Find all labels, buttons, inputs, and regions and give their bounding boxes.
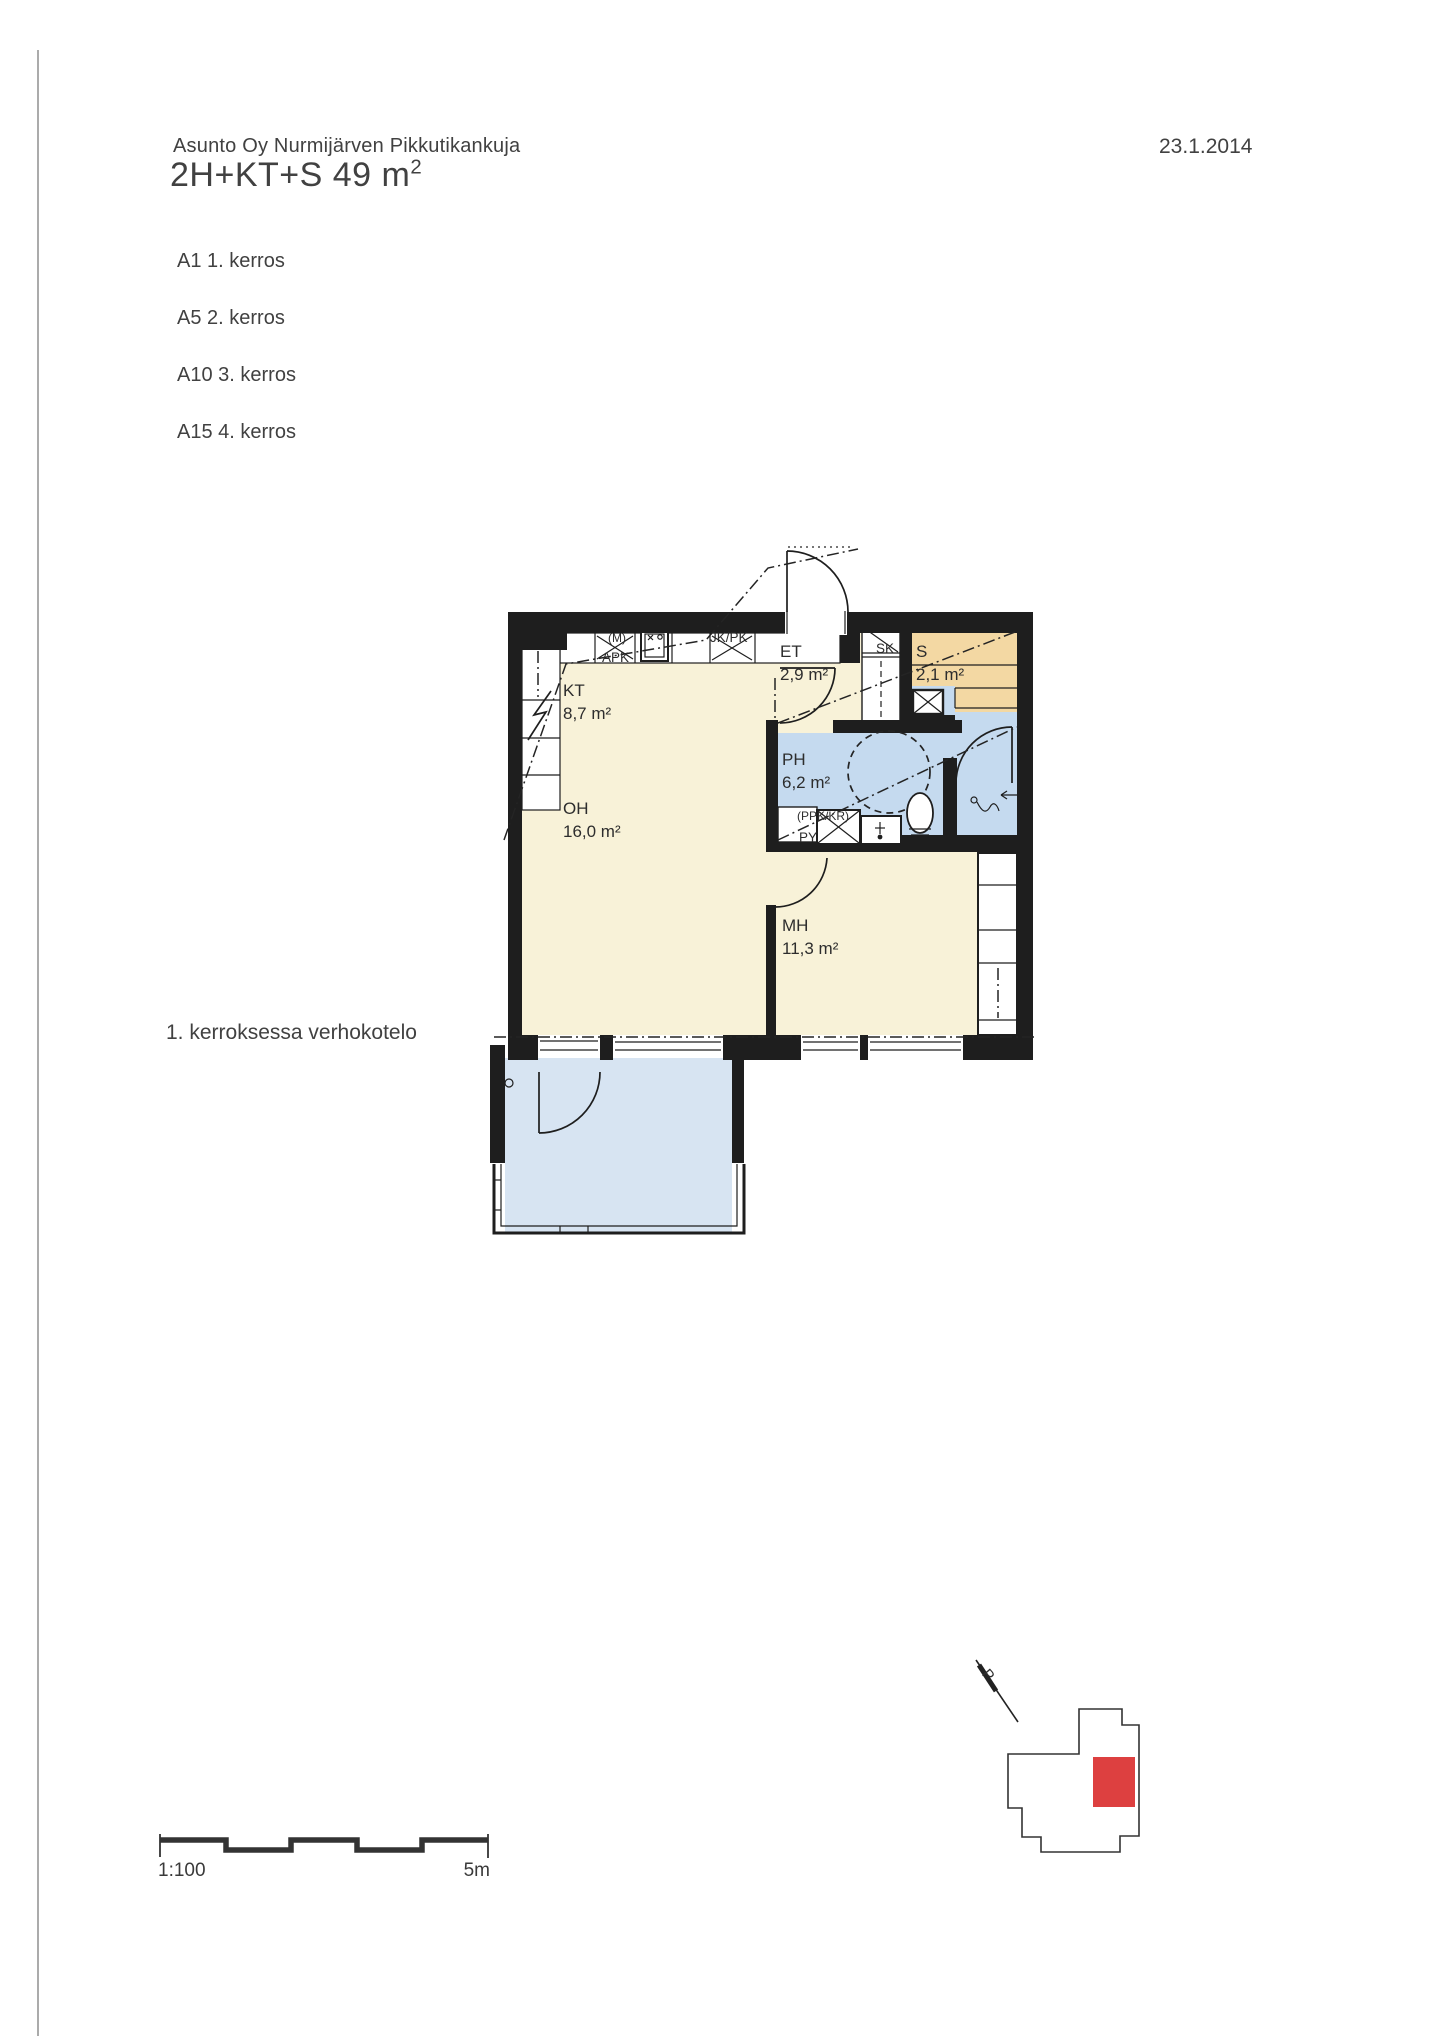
scan-edge-line bbox=[37, 50, 39, 2036]
apartment-type-title: 2H+KT+S 49 m2 bbox=[170, 156, 422, 195]
room-area-ph: 6,2 m² bbox=[782, 773, 831, 792]
room-area-kt: 8,7 m² bbox=[563, 704, 612, 723]
north-arrow-icon: P bbox=[976, 1660, 1018, 1722]
room-label-mh: MH bbox=[782, 916, 808, 935]
floor-plan: KT 8,7 m² OH 16,0 m² ET 2,9 m² SK S 2,1 … bbox=[470, 440, 1070, 1250]
room-label-et: ET bbox=[780, 642, 802, 661]
closet-sk bbox=[862, 625, 900, 722]
label-washer-dryer: (PPK/KR) bbox=[797, 809, 849, 823]
room-area-mh: 11,3 m² bbox=[782, 939, 839, 958]
apartment-highlight bbox=[1093, 1757, 1135, 1807]
label-fridge-freezer: JK/PK bbox=[710, 630, 748, 645]
room-area-et: 2,9 m² bbox=[780, 665, 829, 684]
apartment-type-superscript: 2 bbox=[410, 157, 422, 179]
floor-item-a5: A5 2. kerros bbox=[177, 308, 296, 329]
scale-ratio: 1:100 bbox=[158, 1860, 206, 1881]
floor-item-a1: A1 1. kerros bbox=[177, 251, 296, 272]
label-laundry: PY bbox=[799, 830, 817, 845]
toilet-icon bbox=[907, 793, 933, 835]
floor-item-a10: A10 3. kerros bbox=[177, 365, 296, 386]
room-label-ph: PH bbox=[782, 750, 806, 769]
room-label-s: S bbox=[916, 642, 927, 661]
wardrobe-mh bbox=[978, 853, 1017, 1035]
project-name: Asunto Oy Nurmijärven Pikkutikankuja bbox=[173, 135, 520, 158]
apartment-type-text: 2H+KT+S 49 m bbox=[170, 156, 410, 194]
scale-bar-segments bbox=[160, 1840, 488, 1850]
scale-length: 5m bbox=[464, 1860, 490, 1881]
floorplan-sheet: Asunto Oy Nurmijärven Pikkutikankuja 2H+… bbox=[0, 0, 1440, 2036]
entrance-opening bbox=[785, 610, 847, 635]
sink-icon bbox=[861, 816, 901, 844]
site-map: P bbox=[945, 1640, 1180, 1875]
label-dishwasher: APK bbox=[602, 650, 629, 665]
room-area-s: 2,1 m² bbox=[916, 665, 965, 684]
scale-bar: 1:100 5m bbox=[140, 1815, 510, 1890]
note-verhokotelo: 1. kerroksessa verhokotelo bbox=[166, 1021, 417, 1045]
floor-item-a15: A15 4. kerros bbox=[177, 422, 296, 443]
room-area-oh: 16,0 m² bbox=[563, 822, 621, 841]
document-date: 23.1.2014 bbox=[1159, 135, 1252, 159]
sauna-heater-icon bbox=[913, 690, 943, 714]
label-microwave: (M) bbox=[608, 631, 626, 645]
room-label-sk: SK bbox=[876, 641, 894, 656]
room-label-oh: OH bbox=[563, 799, 589, 818]
floor-list: A1 1. kerros A5 2. kerros A10 3. kerros … bbox=[177, 251, 296, 479]
room-label-kt: KT bbox=[563, 681, 585, 700]
